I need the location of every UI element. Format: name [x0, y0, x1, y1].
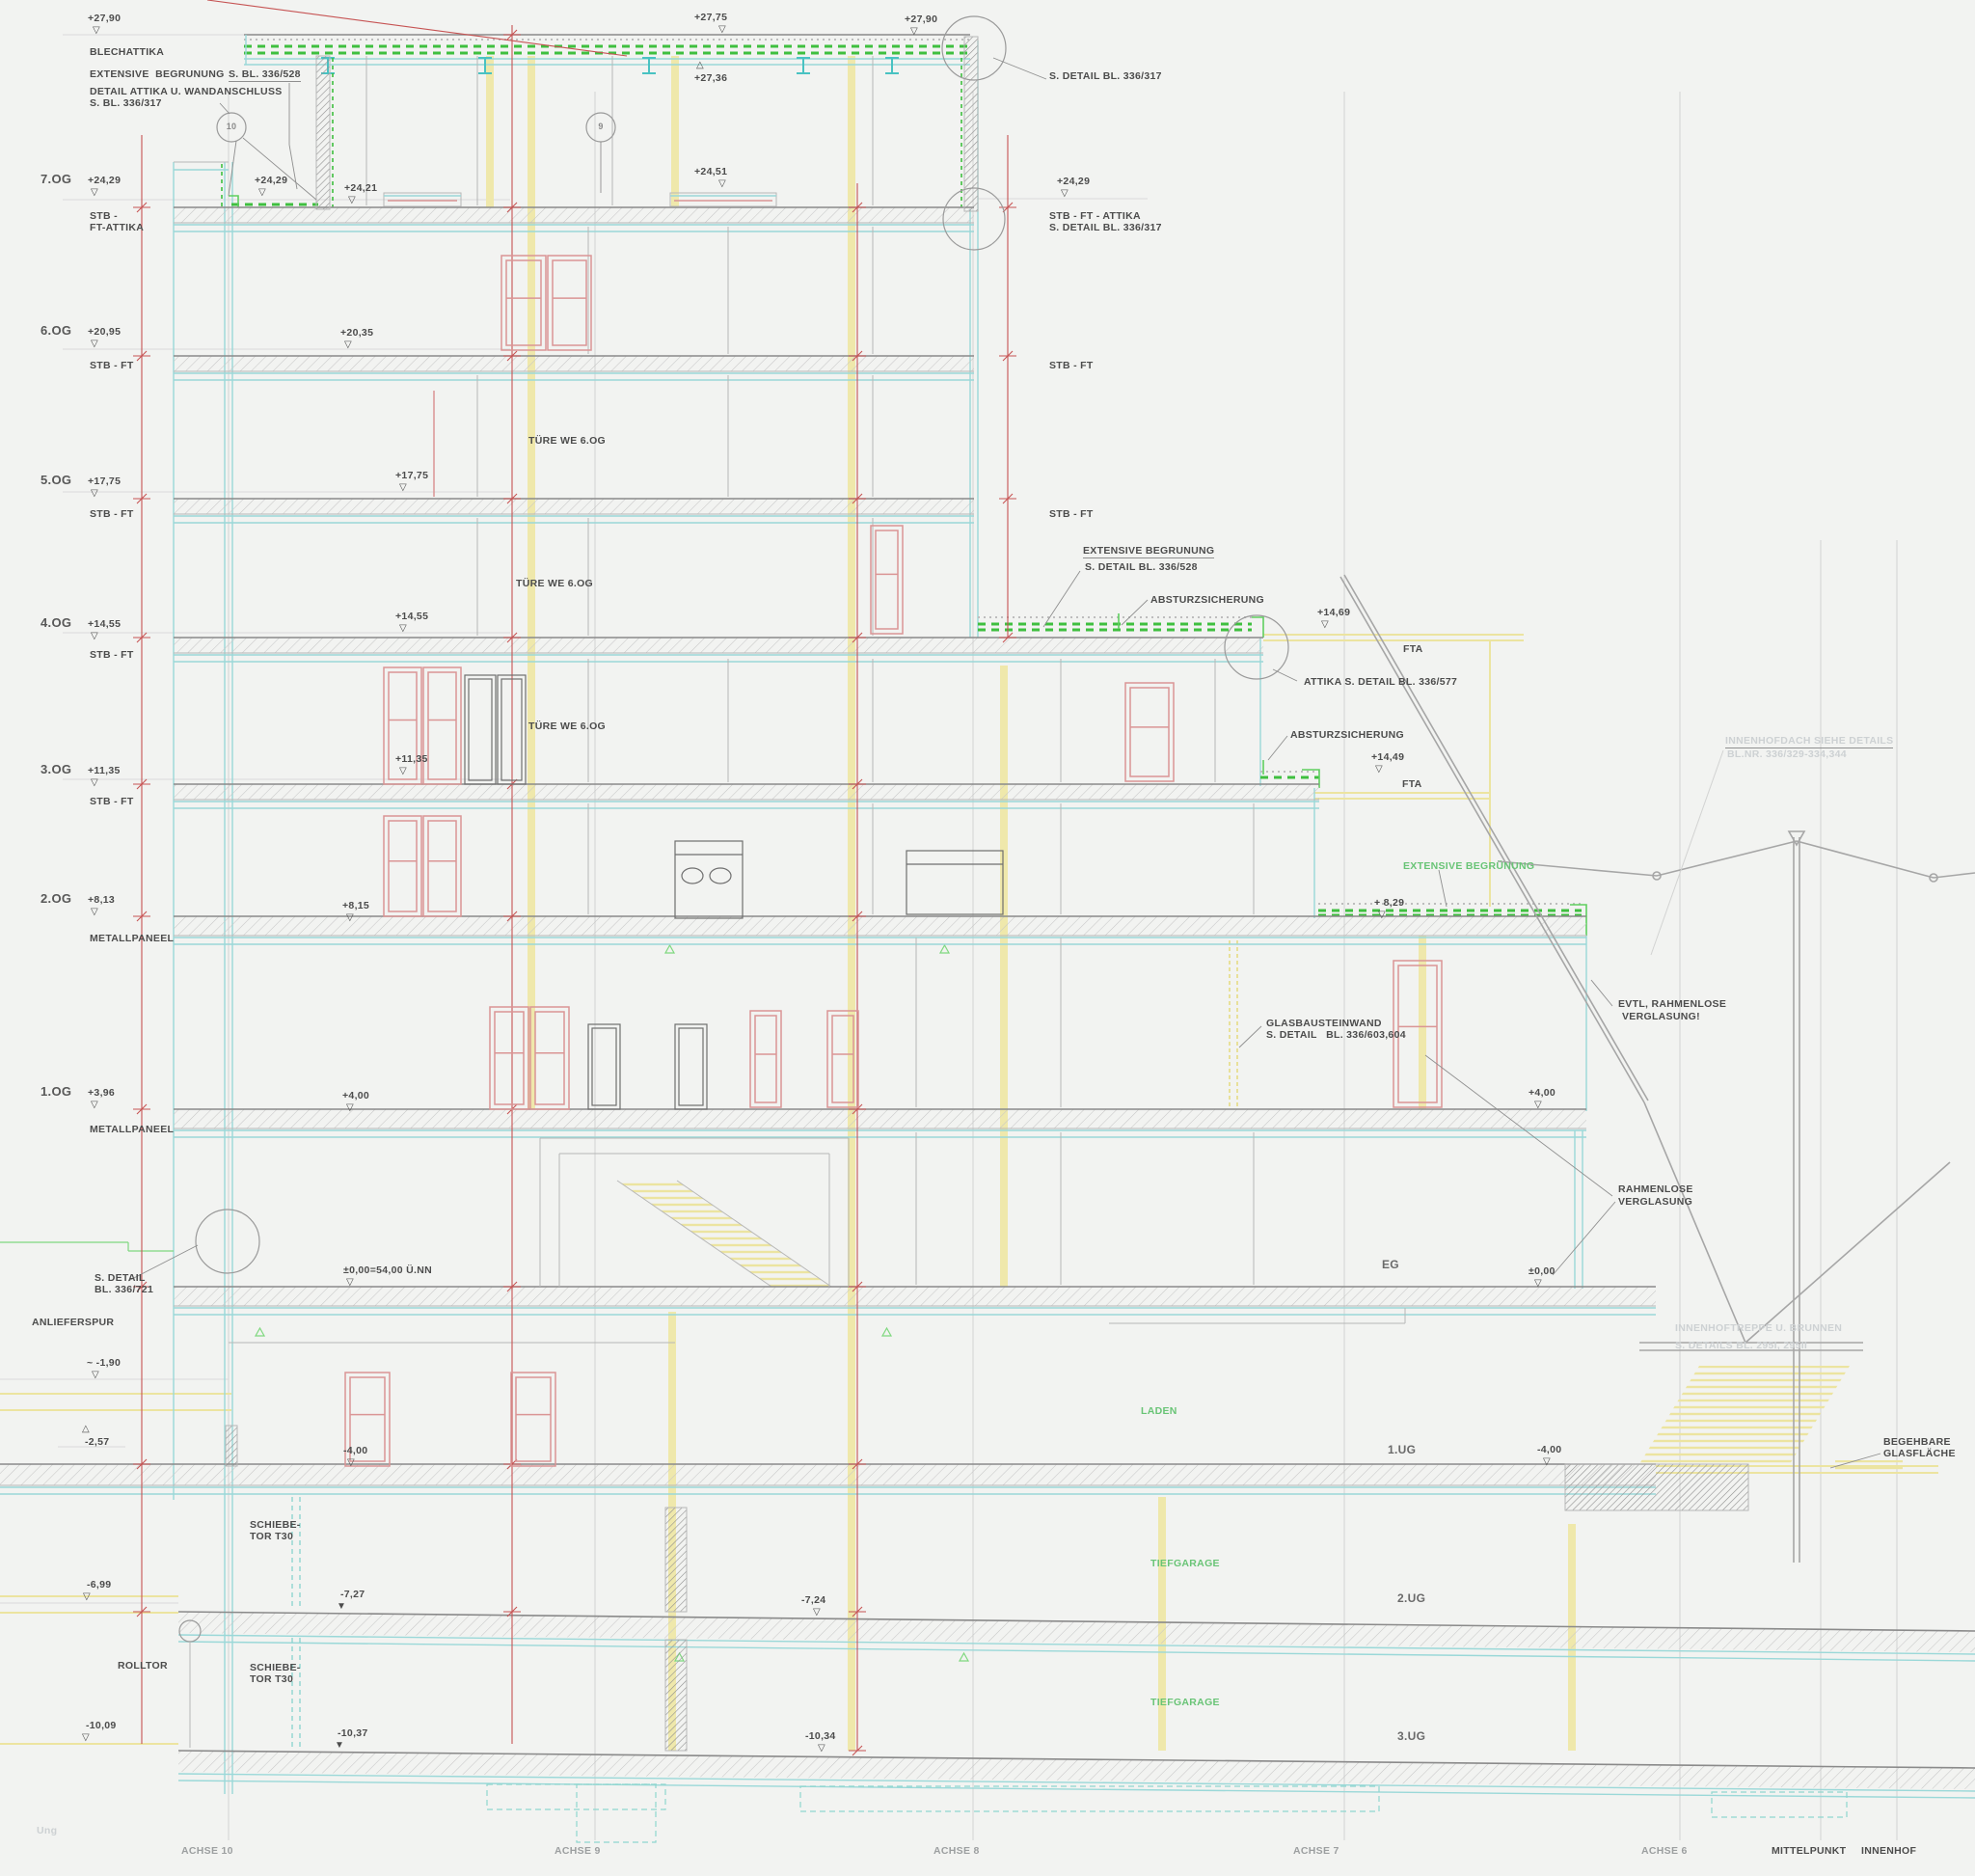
- tuere-we-label: TÜRE WE 6.OG: [528, 436, 606, 447]
- blechattika-label: BLECHATTIKA: [90, 47, 164, 58]
- innenhofdach-label: INNENHOFDACH SIEHE DETAILS: [1725, 736, 1893, 748]
- elevation-label: -6,99: [87, 1580, 111, 1591]
- elevation-label: +27,36: [694, 73, 727, 84]
- elevation-label: +17,75: [395, 471, 428, 481]
- detail-sheet-label: S. DETAIL: [95, 1273, 146, 1284]
- detail-sheet-label: S. DETAIL BL. 336/317: [1049, 223, 1162, 233]
- tuere-we-label: TÜRE WE 6.OG: [528, 721, 606, 732]
- room-label-tiefgarage: TIEFGARAGE: [1150, 1698, 1220, 1708]
- evtl-verglasung-label: VERGLASUNG!: [1622, 1012, 1700, 1022]
- storey-label-eg: EG: [1382, 1260, 1399, 1270]
- elevation-label: +3,96: [88, 1088, 115, 1099]
- level-marker-down: ▽: [1375, 765, 1383, 775]
- level-marker-up: △: [696, 61, 704, 70]
- elevation-label: +24,29: [255, 176, 287, 186]
- level-marker-down: ▽: [813, 1608, 821, 1618]
- level-marker-down: ▽: [910, 27, 918, 37]
- material-label: STB - FT: [90, 650, 134, 661]
- level-marker-down: ▽: [83, 1592, 91, 1602]
- elevation-label: +14,55: [395, 612, 428, 622]
- storey-label-3ug: 3.UG: [1397, 1731, 1425, 1742]
- begehbare-glasflaeche-label: GLASFLÄCHE: [1883, 1449, 1956, 1459]
- level-marker-down: ▽: [1543, 1457, 1551, 1467]
- innenhoftreppe-sheet-label: S. DETAILS BL. 295I, 295II: [1675, 1341, 1807, 1351]
- drawing-canvas: +27,90 ▽ BLECHATTIKA EXTENSIVE BEGRUNUNG…: [0, 0, 1975, 1876]
- level-marker-down: ▽: [91, 632, 98, 641]
- begehbare-glasflaeche-label: BEGEHBARE: [1883, 1437, 1951, 1448]
- elevation-label: +8,13: [88, 895, 115, 906]
- attika-detail-label: ATTIKA S. DETAIL BL. 336/577: [1304, 677, 1457, 688]
- elevation-label: ±0,00: [1529, 1266, 1556, 1277]
- elevation-label: +20,95: [88, 327, 121, 338]
- level-marker-down: ▽: [92, 1371, 99, 1380]
- rahmenlose-verglasung-label: VERGLASUNG: [1618, 1197, 1692, 1208]
- elevation-label: -10,37: [338, 1728, 368, 1739]
- level-marker-down: ▽: [1061, 189, 1069, 199]
- rahmenlose-verglasung-label: RAHMENLOSE: [1618, 1184, 1693, 1195]
- extensive-begruenung-top-label: EXTENSIVE BEGRUNUNG: [90, 69, 225, 80]
- elevation-label: +24,51: [694, 167, 727, 177]
- level-marker-down: ▽: [346, 913, 354, 923]
- room-label-tiefgarage: TIEFGARAGE: [1150, 1559, 1220, 1569]
- detail-sheet-label: S. DETAIL BL. 336/528: [1085, 562, 1198, 573]
- axis-label-10: ACHSE 10: [181, 1846, 233, 1857]
- elevation-label: +24,21: [344, 183, 377, 194]
- material-label: STB - FT: [90, 797, 134, 807]
- elevation-label: -4,00: [343, 1446, 367, 1456]
- elevation-label: +4,00: [1529, 1088, 1556, 1099]
- rolltor-label: ROLLTOR: [118, 1661, 168, 1672]
- anlieferspur-label: ANLIEFERSPUR: [32, 1318, 114, 1328]
- level-marker-down: ▽: [82, 1733, 90, 1743]
- elevation-label: +11,35: [88, 766, 121, 776]
- level-marker-down: ▽: [91, 778, 98, 788]
- innenhof-label: INNENHOF: [1861, 1846, 1916, 1857]
- room-label-laden: LADEN: [1141, 1406, 1177, 1417]
- floor-label-7og: 7.OG: [41, 174, 71, 184]
- elevation-label: +27,75: [694, 13, 727, 23]
- level-marker-filled: ▼: [337, 1602, 346, 1612]
- level-marker-down: ▽: [399, 767, 407, 776]
- material-label: STB - FT: [1049, 509, 1094, 520]
- innenhofdach-sheet-label: BL.NR. 336/329-334,344: [1727, 749, 1847, 760]
- fta-label: FTA: [1403, 644, 1423, 655]
- level-marker-down: ▽: [818, 1744, 825, 1754]
- glasbaustein-label: GLASBAUSTEINWAND: [1266, 1019, 1382, 1029]
- detail-sheet-label: BL. 336/721: [95, 1285, 153, 1295]
- axis-label-6: ACHSE 6: [1641, 1846, 1688, 1857]
- material-label: METALLPANEEL: [90, 1125, 174, 1135]
- level-marker-down: ▽: [258, 188, 266, 198]
- elevation-label: ~ -1,90: [87, 1358, 121, 1369]
- elevation-label: ±0,00=54,00 Ü.NN: [343, 1265, 432, 1276]
- elevation-label: +11,35: [395, 754, 428, 765]
- extensive-begruenung-green-label: EXTENSIVE BEGRÜNUNG: [1403, 861, 1534, 872]
- sheet-336-528-label: S. BL. 336/528: [229, 69, 301, 82]
- level-marker-down: ▽: [1534, 1101, 1542, 1110]
- level-marker-down: ▽: [91, 188, 98, 198]
- schiebetor-label: SCHIEBE-: [250, 1520, 301, 1531]
- elevation-label: -4,00: [1537, 1445, 1561, 1455]
- level-marker-down: ▽: [346, 1103, 354, 1113]
- floor-label-6og: 6.OG: [41, 325, 71, 336]
- storey-label-1ug: 1.UG: [1388, 1445, 1416, 1455]
- attika-material-label: STB - FT - ATTIKA: [1049, 211, 1141, 222]
- floor-label-2og: 2.OG: [41, 893, 71, 904]
- level-marker-down: ▽: [1534, 1279, 1542, 1289]
- axis-label-8: ACHSE 8: [933, 1846, 980, 1857]
- axis-label-9: ACHSE 9: [555, 1846, 601, 1857]
- evtl-verglasung-label: EVTL, RAHMENLOSE: [1618, 999, 1726, 1010]
- material-label: STB - FT: [90, 509, 134, 520]
- fta-label: FTA: [1402, 779, 1422, 790]
- level-marker-down: ▽: [91, 340, 98, 349]
- floor-label-3og: 3.OG: [41, 764, 71, 775]
- elevation-label: -10,34: [805, 1731, 836, 1742]
- elevation-label: -2,57: [85, 1437, 109, 1448]
- elevation-label: +24,29: [88, 176, 121, 186]
- material-label: STB - FT: [1049, 361, 1094, 371]
- level-marker-down: ▽: [93, 26, 100, 36]
- level-marker-down: ▽: [718, 25, 726, 35]
- level-marker-down: ▽: [399, 483, 407, 493]
- level-marker-down: ▽: [347, 1458, 355, 1468]
- storey-label-2ug: 2.UG: [1397, 1593, 1425, 1604]
- detail-circle-10-number: 10: [224, 122, 239, 132]
- elevation-label: +4,00: [342, 1091, 369, 1101]
- material-label: FT-ATTIKA: [90, 223, 144, 233]
- level-marker-down: ▽: [344, 340, 352, 350]
- elevation-label: -7,24: [801, 1595, 825, 1606]
- extensive-begruenung-detail-label: EXTENSIVE BEGRUNUNG: [1083, 546, 1214, 558]
- glasbaustein-sheet-label: S. DETAIL BL. 336/603,604: [1266, 1030, 1406, 1041]
- elevation-label: + 8,29: [1374, 898, 1404, 909]
- detail-attika-label: DETAIL ATTIKA U. WANDANSCHLUSS: [90, 87, 283, 97]
- floor-label-5og: 5.OG: [41, 475, 71, 485]
- innenhoftreppe-label: INNENHOFTREPPE U. BRUNNEN: [1675, 1323, 1842, 1334]
- level-marker-filled: ▼: [335, 1741, 344, 1751]
- schiebetor-label: SCHIEBE-: [250, 1663, 301, 1673]
- level-marker-down: ▽: [718, 179, 726, 189]
- schiebetor-label: TOR T30: [250, 1532, 293, 1542]
- material-label: STB - FT: [90, 361, 134, 371]
- schiebetor-label: TOR T30: [250, 1674, 293, 1685]
- level-marker-down: ▽: [348, 196, 356, 205]
- level-marker-down: ▽: [91, 489, 98, 499]
- elevation-label: +27,90: [88, 14, 121, 24]
- elevation-label: +20,35: [340, 328, 373, 339]
- material-label: STB -: [90, 211, 118, 222]
- absturzsicherung-label: ABSTURZSICHERUNG: [1150, 595, 1264, 606]
- floor-label-1og: 1.OG: [41, 1086, 71, 1097]
- level-marker-down: ▽: [346, 1278, 354, 1288]
- tuere-we-label: TÜRE WE 6.OG: [516, 579, 593, 589]
- elevation-label: +14,49: [1371, 752, 1404, 763]
- elevation-label: -7,27: [340, 1590, 365, 1600]
- axis-label-7: ACHSE 7: [1293, 1846, 1339, 1857]
- level-marker-down: ▽: [1321, 620, 1329, 630]
- level-marker-down: ▽: [1378, 911, 1386, 920]
- elevation-label: +17,75: [88, 476, 121, 487]
- elevation-label: +14,69: [1317, 608, 1350, 618]
- elevation-label: +14,55: [88, 619, 121, 630]
- level-marker-down: ▽: [91, 1101, 98, 1110]
- elevation-label: +8,15: [342, 901, 369, 911]
- section-linework: [0, 0, 1975, 1876]
- detail-attika-sheet-label: S. BL. 336/317: [90, 98, 162, 109]
- mittelpunkt-label: MITTELPUNKT: [1772, 1846, 1846, 1857]
- detail-sheet-label: S. DETAIL BL. 336/317: [1049, 71, 1162, 82]
- watermark-text: Ung: [37, 1826, 57, 1836]
- material-label: METALLPANEEL: [90, 934, 174, 944]
- level-marker-down: ▽: [91, 908, 98, 917]
- level-marker-down: ▽: [399, 624, 407, 634]
- absturzsicherung-label: ABSTURZSICHERUNG: [1290, 730, 1404, 741]
- elevation-label: +27,90: [905, 14, 937, 25]
- elevation-label: -10,09: [86, 1721, 117, 1731]
- detail-circle-9-number: 9: [593, 122, 609, 132]
- elevation-label: +24,29: [1057, 177, 1090, 187]
- level-marker-up: △: [82, 1425, 90, 1434]
- floor-label-4og: 4.OG: [41, 617, 71, 628]
